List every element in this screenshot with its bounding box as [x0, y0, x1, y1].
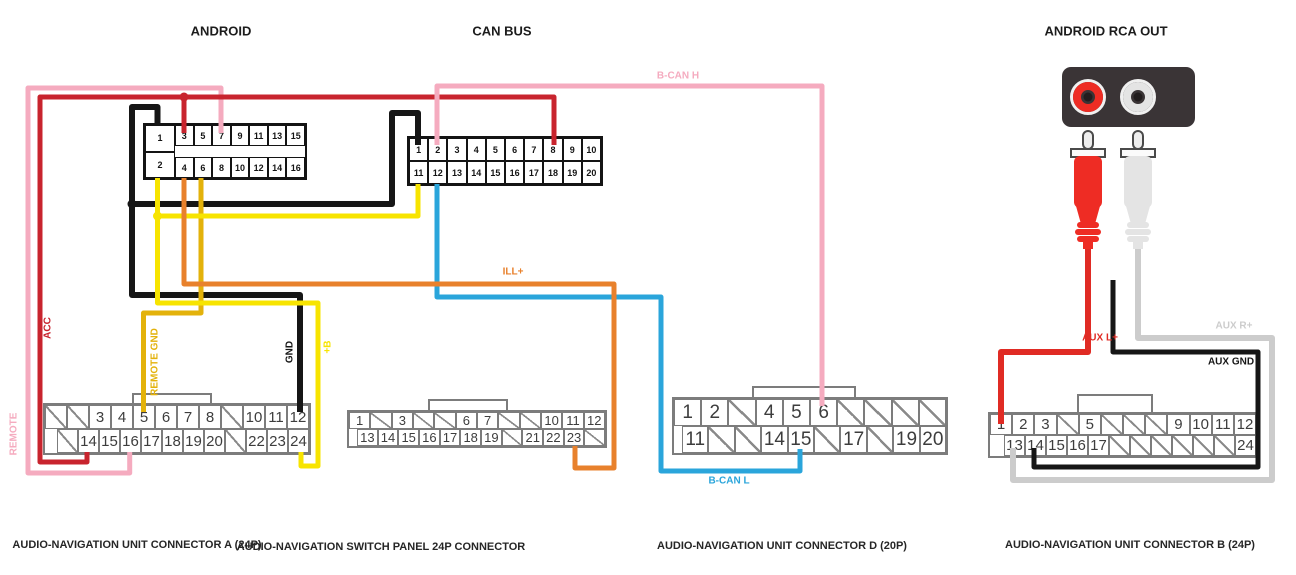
wire-label-b-can-h: B-CAN H: [657, 71, 699, 82]
connector-b-bottom-row: 131415161724: [990, 435, 1256, 456]
pin-cell-20: 20: [920, 426, 946, 453]
header-android: ANDROID: [191, 24, 252, 39]
android-connector-bottom-row: 46810121416: [175, 157, 305, 178]
pin-cell-19: 19: [893, 426, 919, 453]
rca-plug-white-icon: [1121, 131, 1155, 249]
switch-panel-bottom-row: 13141516171819212223: [349, 429, 605, 446]
pin-cell-blank: [867, 426, 893, 453]
pin-cell-3: 3: [392, 412, 413, 429]
pin-cell-17: 17: [141, 429, 162, 453]
rca-jack-red-icon: [1072, 81, 1105, 114]
pin-cell-24: 24: [1235, 435, 1256, 456]
switch-panel-connector: 1367101112 13141516171819212223: [347, 410, 607, 448]
pin-cell-9: 9: [231, 125, 250, 146]
pin-cell-18: 18: [460, 429, 481, 446]
pin-cell-15: 15: [788, 426, 814, 453]
pin-cell-blank: [735, 426, 761, 453]
pin-cell-16: 16: [1067, 435, 1088, 456]
pin-cell-1: 1: [409, 138, 428, 161]
row-offset-spacer: [45, 429, 57, 453]
pin-cell-blank: [1101, 414, 1123, 435]
pin-cell-7: 7: [524, 138, 543, 161]
pin-cell-blank: [708, 426, 734, 453]
rca-panel-group: [1062, 67, 1195, 249]
pin-cell-blank: [370, 412, 391, 429]
wiring-diagram: ANDROID CAN BUS ANDROID RCA OUT 12 35791…: [0, 0, 1296, 575]
pin-cell-15: 15: [486, 161, 505, 184]
pin-cell-blank: [520, 412, 541, 429]
pin-cell-14: 14: [467, 161, 486, 184]
pin-cell-1: 1: [990, 414, 1012, 435]
wire-b-can-h: [437, 86, 822, 406]
connector-b-title: AUDIO-NAVIGATION UNIT CONNECTOR B (24P): [1005, 539, 1255, 551]
can-bus-top-row: 12345678910: [409, 138, 601, 161]
connector-a-top-row: 345678101112: [45, 405, 309, 429]
pin-cell-9: 9: [1167, 414, 1189, 435]
wire-label-acc: ACC: [43, 317, 54, 339]
wire-label-gnd: GND: [285, 341, 296, 363]
pin-cell-15: 15: [99, 429, 120, 453]
pin-cell-5: 5: [486, 138, 505, 161]
connector-a-title: AUDIO-NAVIGATION UNIT CONNECTOR A (24P): [12, 539, 261, 551]
wire-label-b-can-l: B-CAN L: [708, 476, 749, 487]
pin-cell-blank: [1193, 435, 1214, 456]
pin-cell-3: 3: [447, 138, 466, 161]
wire-label-aux-gnd: AUX GND: [1208, 357, 1254, 368]
pin-cell-22: 22: [246, 429, 267, 453]
header-android-rca-out: ANDROID RCA OUT: [1044, 24, 1167, 39]
pin-cell-14: 14: [761, 426, 787, 453]
pin-cell-6: 6: [505, 138, 524, 161]
wire-label-ill: ILL+: [503, 267, 524, 278]
connector-d-top-row: 12456: [674, 399, 946, 426]
pin-cell-18: 18: [543, 161, 562, 184]
pin-cell-blank: [413, 412, 434, 429]
android-connector-top-row: 3579111315: [175, 125, 305, 146]
pin-cell-9: 9: [563, 138, 582, 161]
pin-cell-13: 13: [357, 429, 378, 446]
connector-b-top-row: 12359101112: [990, 414, 1256, 435]
pin-cell-13: 13: [268, 125, 287, 146]
pin-cell-21: 21: [522, 429, 543, 446]
pin-cell-4: 4: [111, 405, 133, 429]
pin-cell-11: 11: [562, 412, 583, 429]
pin-cell-17: 17: [1088, 435, 1109, 456]
pin-cell-13: 13: [447, 161, 466, 184]
wire-label-remote: REMOTE: [9, 413, 20, 456]
pin-cell-14: 14: [268, 157, 287, 178]
pin-cell-11: 11: [249, 125, 268, 146]
pin-cell-8: 8: [199, 405, 221, 429]
pin-cell-blank: [45, 405, 67, 429]
pin-cell-blank: [502, 429, 523, 446]
pin-cell-blank: [1151, 435, 1172, 456]
pin-cell-blank: [1123, 414, 1145, 435]
pin-cell-2: 2: [701, 399, 728, 426]
pin-cell-19: 19: [183, 429, 204, 453]
pin-cell-14: 14: [1025, 435, 1046, 456]
pin-cell-23: 23: [267, 429, 288, 453]
pin-cell-1: 1: [349, 412, 370, 429]
junction-dot-black: [128, 200, 137, 209]
unit-connector-d: 12456 111415171920: [672, 397, 948, 455]
pin-cell-12: 12: [428, 161, 447, 184]
pin-cell-blank: [1130, 435, 1151, 456]
pin-cell-6: 6: [194, 157, 213, 178]
connector-a-bottom-row: 14151617181920222324: [45, 429, 309, 453]
pin-cell-3: 3: [1034, 414, 1056, 435]
pin-cell-2: 2: [428, 138, 447, 161]
pin-cell-6: 6: [155, 405, 177, 429]
row-offset-spacer: [674, 426, 682, 453]
header-can-bus: CAN BUS: [472, 24, 531, 39]
pin-cell-20: 20: [582, 161, 601, 184]
connector-d-bottom-row: 111415171920: [674, 426, 946, 453]
wire-label-plus-b: +B: [323, 340, 334, 353]
pin-cell-1: 1: [145, 125, 175, 152]
pin-cell-3: 3: [175, 125, 194, 146]
pin-cell-5: 5: [1079, 414, 1101, 435]
pin-cell-3: 3: [89, 405, 111, 429]
pin-cell-15: 15: [1046, 435, 1067, 456]
switch-panel-title: AUDIO-NAVIGATION SWITCH PANEL 24P CONNEC…: [237, 541, 525, 553]
pin-cell-2: 2: [145, 152, 175, 179]
pin-cell-10: 10: [541, 412, 562, 429]
pin-cell-11: 11: [682, 426, 708, 453]
pin-cell-2: 2: [1012, 414, 1034, 435]
pin-cell-1: 1: [674, 399, 701, 426]
pin-cell-blank: [221, 405, 243, 429]
pin-cell-10: 10: [243, 405, 265, 429]
pin-cell-17: 17: [840, 426, 866, 453]
pin-cell-13: 13: [1004, 435, 1025, 456]
pin-cell-5: 5: [133, 405, 155, 429]
wire-layer: [0, 0, 1296, 575]
pin-cell-blank: [892, 399, 919, 426]
junction-dot-yellow: [153, 212, 162, 221]
pin-cell-10: 10: [582, 138, 601, 161]
pin-cell-23: 23: [564, 429, 585, 446]
pin-cell-blank: [864, 399, 891, 426]
wire-aux-l: [1001, 246, 1088, 424]
pin-cell-blank: [919, 399, 946, 426]
junction-dot-red: [180, 93, 189, 102]
pin-cell-17: 17: [440, 429, 461, 446]
pin-cell-blank: [1172, 435, 1193, 456]
unit-connector-a: 345678101112 14151617181920222324: [43, 403, 311, 455]
pin-cell-5: 5: [194, 125, 213, 146]
android-connector: 12 3579111315 46810121416: [143, 123, 307, 180]
pin-cell-blank: [67, 405, 89, 429]
wire-label-aux-l: AUX L+: [1082, 333, 1118, 344]
pin-cell-11: 11: [409, 161, 428, 184]
pin-cell-12: 12: [287, 405, 309, 429]
pin-cell-blank: [225, 429, 246, 453]
wire-label-remote-gnd: REMOTE GND: [150, 328, 161, 396]
pin-cell-blank: [814, 426, 840, 453]
pin-cell-blank: [1057, 414, 1079, 435]
pin-cell-16: 16: [120, 429, 141, 453]
pin-cell-4: 4: [175, 157, 194, 178]
wire-plus-b-canbus: [158, 184, 419, 216]
pin-cell-12: 12: [249, 157, 268, 178]
pin-cell-8: 8: [212, 157, 231, 178]
android-connector-grid: 3579111315 46810121416: [175, 125, 305, 178]
pin-cell-7: 7: [212, 125, 231, 146]
pin-cell-12: 12: [584, 412, 605, 429]
android-connector-gap: [175, 146, 305, 157]
pin-cell-10: 10: [1190, 414, 1212, 435]
pin-cell-15: 15: [398, 429, 419, 446]
pin-cell-19: 19: [481, 429, 502, 446]
pin-cell-blank: [57, 429, 78, 453]
pin-cell-5: 5: [783, 399, 810, 426]
can-bus-bottom-row: 11121314151617181920: [409, 161, 601, 184]
pin-cell-16: 16: [286, 157, 305, 178]
row-offset-spacer: [990, 435, 1004, 456]
pin-cell-17: 17: [524, 161, 543, 184]
pin-cell-12: 12: [1234, 414, 1256, 435]
pin-cell-7: 7: [477, 412, 498, 429]
pin-cell-8: 8: [543, 138, 562, 161]
pin-cell-20: 20: [204, 429, 225, 453]
can-bus-connector: 12345678910 11121314151617181920: [407, 136, 603, 186]
pin-cell-16: 16: [419, 429, 440, 446]
android-connector-left-column: 12: [145, 125, 175, 178]
pin-cell-6: 6: [810, 399, 837, 426]
pin-cell-14: 14: [78, 429, 99, 453]
pin-cell-blank: [728, 399, 755, 426]
pin-cell-16: 16: [505, 161, 524, 184]
pin-cell-blank: [434, 412, 455, 429]
connector-d-title: AUDIO-NAVIGATION UNIT CONNECTOR D (20P): [657, 540, 907, 552]
pin-cell-4: 4: [467, 138, 486, 161]
switch-panel-top-row: 1367101112: [349, 412, 605, 429]
pin-cell-11: 11: [265, 405, 287, 429]
pin-cell-19: 19: [563, 161, 582, 184]
pin-cell-blank: [1109, 435, 1130, 456]
pin-cell-blank: [1145, 414, 1167, 435]
pin-cell-15: 15: [286, 125, 305, 146]
pin-cell-blank: [1214, 435, 1235, 456]
row-offset-spacer: [349, 429, 357, 446]
pin-cell-blank: [837, 399, 864, 426]
unit-connector-b: 12359101112 131415161724: [988, 412, 1258, 458]
pin-cell-11: 11: [1212, 414, 1234, 435]
pin-cell-4: 4: [756, 399, 783, 426]
pin-cell-22: 22: [543, 429, 564, 446]
pin-cell-6: 6: [456, 412, 477, 429]
rca-panel: [1062, 67, 1195, 127]
rca-plug-red-icon: [1071, 131, 1105, 249]
rca-jack-white-icon: [1122, 81, 1155, 114]
pin-cell-blank: [584, 429, 605, 446]
pin-cell-18: 18: [162, 429, 183, 453]
pin-cell-blank: [498, 412, 519, 429]
wire-label-aux-r: AUX R+: [1216, 321, 1253, 332]
pin-cell-7: 7: [177, 405, 199, 429]
connector-b-tab: [1077, 394, 1153, 414]
pin-cell-24: 24: [288, 429, 309, 453]
pin-cell-10: 10: [231, 157, 250, 178]
pin-cell-14: 14: [378, 429, 399, 446]
